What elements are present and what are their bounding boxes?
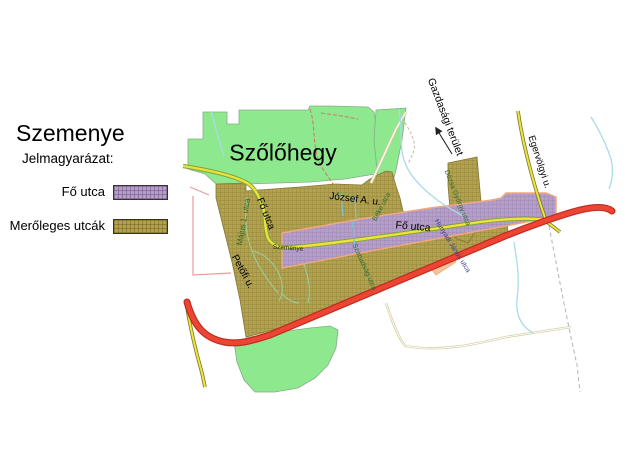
legend-subtitle: Jelmagyarázat:: [22, 151, 114, 166]
legend-swatch-meroleges: [113, 219, 168, 234]
area-label-szolohegy: Szőlőhegy: [229, 142, 336, 165]
map-page: Szemenye Jelmagyarázat: Fő utca Merőlege…: [0, 0, 642, 453]
page-title: Szemenye: [16, 120, 125, 147]
legend-label-fo-utca: Fő utca: [0, 184, 105, 199]
legend-swatch-fo-utca: [113, 185, 168, 200]
street-label-fo-utca-center: Fő utca: [395, 220, 431, 234]
legend-label-meroleges: Merőleges utcák: [0, 218, 105, 233]
